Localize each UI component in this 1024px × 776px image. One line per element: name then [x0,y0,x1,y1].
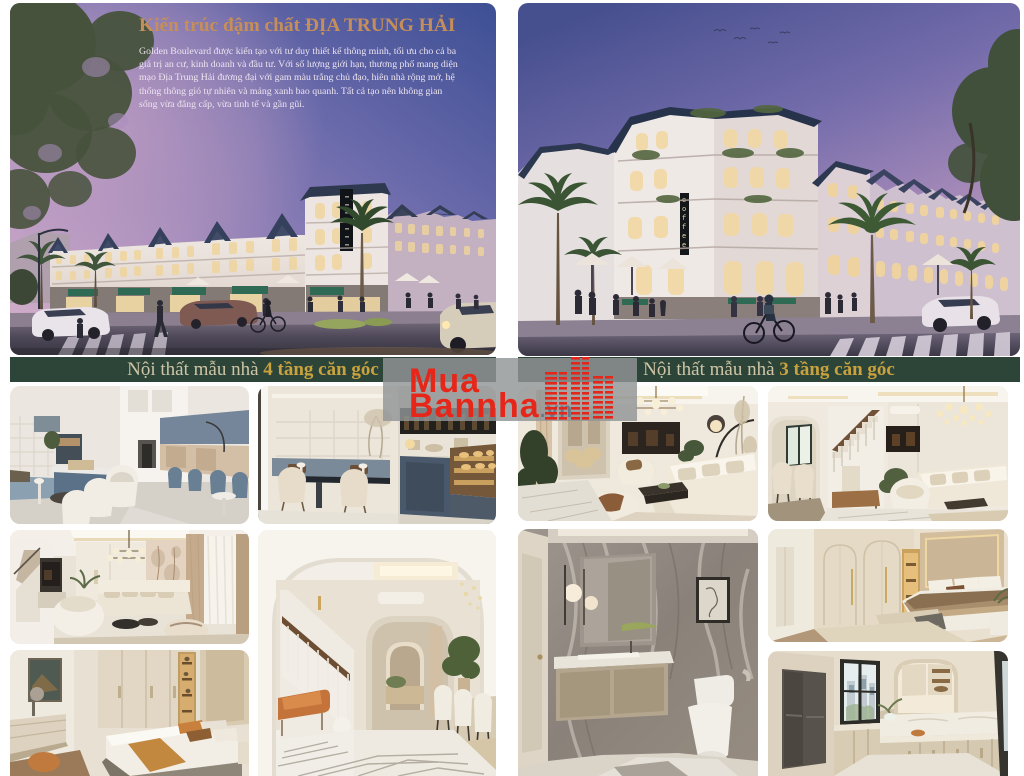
svg-text:f: f [682,215,686,223]
svg-text:f: f [682,224,686,232]
svg-text:o: o [682,206,686,214]
svg-text:e: e [682,233,686,241]
